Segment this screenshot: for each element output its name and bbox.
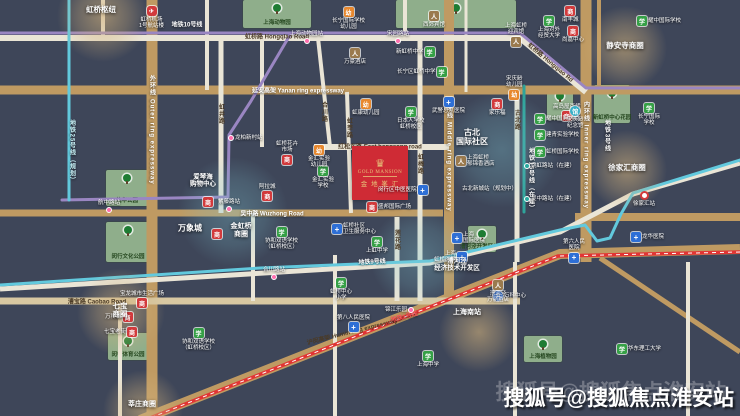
shop-icon: 商 [367, 202, 377, 212]
station-label: 紫藤路站 [218, 199, 240, 205]
shop-icon: 商 [492, 99, 502, 109]
road-label: 延安高架 Yanan ring expressway [252, 86, 344, 95]
poi-label: 漕河泾万丽酒店 [487, 291, 509, 304]
hotel-icon: 人 [511, 37, 521, 47]
poi-shop: 商七宝老街 [104, 327, 137, 337]
station-dot [395, 38, 401, 44]
kind-icon: 幼 [361, 99, 371, 109]
poi-label: 日本人学校虹桥校区 [397, 118, 425, 131]
poi-school: 学协和双语学校（虹桥校区） [265, 227, 298, 251]
shop-icon: 商 [565, 6, 575, 16]
station-label: 锦江乐园 [385, 307, 407, 313]
kind-icon: 幼 [314, 145, 324, 155]
poi-label: 上海中学 [417, 362, 439, 368]
school-icon: 学 [617, 344, 627, 354]
poi-label: 虹桥花卉市场 [276, 141, 298, 154]
poi-school: 学建青实验学校 [535, 130, 579, 140]
road-label: 地铁25号线（规划） [68, 120, 77, 185]
poi-shop: 商盛邦国际广场 [367, 202, 411, 212]
hosp-icon: + [631, 232, 641, 242]
poi-kind: 幼长宁国际学校幼儿园 [332, 7, 365, 31]
poi-hosp: +第六人民医院 [563, 239, 585, 263]
poi-school: 学虹桥国际学校 [535, 147, 579, 157]
poi-school: 学上虹中学 [366, 237, 388, 254]
school-icon: 学 [372, 237, 382, 247]
poi-school: 学金汇实验学校 [312, 166, 334, 190]
poi-hotel: 人上海虹桥迎宾馆 [505, 23, 527, 47]
district-label: 上海南站 [453, 309, 481, 317]
poi-school: 学长宁国际学校 [638, 103, 660, 127]
station-label: 姚虹路站（在建） [531, 163, 575, 169]
poi-kind: 幼虹康幼儿园 [352, 99, 380, 116]
shop-icon: 商 [262, 191, 272, 201]
shop-icon: 商 [137, 298, 147, 308]
poi-hosp: +龙华医院 [631, 232, 664, 242]
road-label: 吴中路 Wuzhong Road [240, 209, 303, 218]
station-label: 吴中路站（在建） [531, 196, 575, 202]
district-label: 金虹桥商圈 [231, 223, 252, 239]
poi-label: 宋庆龄纪念馆 [567, 117, 584, 130]
shop-icon: 商 [203, 197, 213, 207]
metro-station: 姚虹路站（在建） [524, 163, 575, 169]
road-label: 中环线 Middle ring expressway [445, 98, 454, 211]
property-divider [363, 176, 397, 177]
road-label: 外环线 Outer ring expressway [148, 75, 157, 184]
poi-hosp: +虹桥社区卫生服务中心 [332, 223, 376, 236]
station-dot [226, 206, 232, 212]
shop-icon: 商 [568, 26, 578, 36]
shop-icon: 商 [212, 229, 222, 239]
poi-label: 长宁国际学校幼儿园 [332, 18, 365, 31]
map-canvas: 上海动物园航华公园闵行文化公园闵行体育公园新虹桥中心花园漕河泾开发区公园上海植物… [0, 0, 740, 416]
poi-label: 华东理工大学 [628, 346, 661, 352]
district-label: 静安寺商圈 [606, 42, 644, 50]
poi-label: 南丰城 [562, 17, 579, 23]
poi-label: 宋庆龄幼儿园 [506, 76, 523, 89]
poi-label: 龙华医院 [642, 234, 664, 240]
station-dot [106, 207, 112, 213]
poi-label: 金汇实验幼儿园 [308, 156, 330, 169]
hotel-icon: 人 [493, 280, 503, 290]
poi-shop: 商虹桥花卉市场 [276, 141, 298, 165]
district-label: 万象城 [178, 225, 202, 234]
station-label: 合川路站 [263, 267, 285, 273]
metro-station: 合川路站 [263, 267, 285, 280]
poi-label: 武警总队医院 [432, 108, 465, 114]
school-icon: 学 [406, 107, 416, 117]
metro-station: 龙柏新村站 [228, 135, 263, 141]
road-segment [347, 92, 351, 213]
station-label: 宋园路站 [387, 31, 409, 37]
poi-label: 闵行区中医医院 [378, 187, 417, 193]
road-label: 虹井路 [217, 104, 226, 125]
poi-hotel: 人西郊宾馆 [423, 11, 445, 28]
poi-label: 长宁区虹桥中学 [397, 69, 436, 75]
school-icon: 学 [637, 16, 647, 26]
metro-station: 紫藤路站 [218, 199, 240, 212]
poi-hosp: +闵行区中医医院 [378, 185, 428, 195]
station-label: 上海动物园站 [290, 31, 323, 37]
poi-label: 金汇实验学校 [312, 177, 334, 190]
poi-label: 耀中国际学校 [648, 18, 681, 24]
station-dot [228, 135, 234, 141]
road-label: 地铁15号线（在建） [527, 148, 536, 213]
metro-station: 上海动物园站 [290, 31, 323, 44]
poi-hotel: 人上海虹桥郁锦香酒店 [456, 155, 495, 168]
poi-school: 学虹桥中心小学 [330, 278, 352, 302]
poi-label: 虹桥国际学校 [546, 149, 579, 155]
crown-icon: ♛ [375, 159, 385, 169]
school-icon: 学 [423, 351, 433, 361]
station-label: 龙柏新村站 [235, 135, 263, 141]
poi-label: 宝龙城市生活广场 [120, 291, 164, 297]
poi-shop: 商阿拉城 [259, 184, 276, 201]
school-icon: 学 [535, 114, 545, 124]
poi-label: 建青实验学校 [546, 132, 579, 138]
poi-school: 学上海中学 [417, 351, 439, 368]
poi-label: 虹康幼儿园 [352, 110, 380, 116]
poi-label: 上海虹桥郁锦香酒店 [467, 155, 495, 168]
metro-station: 宋园路站 [387, 31, 409, 44]
poi-label: 新虹桥中学 [396, 49, 424, 55]
poi-hosp: +第八人民医院 [337, 315, 370, 332]
road-label: 地铁3号线 [603, 120, 612, 152]
poi-label: 协和双语学校（虹桥校区） [265, 238, 298, 251]
road-segment [600, 258, 740, 352]
school-icon: 学 [535, 147, 545, 157]
road-label: 合川路 [320, 102, 329, 123]
poi-hosp: +上海国际医院 [452, 232, 485, 245]
shop-icon: 商 [282, 155, 292, 165]
poi-label: 七宝老街 [104, 329, 126, 335]
school-icon: 学 [194, 328, 204, 338]
district-label: 七宝商圈 [113, 303, 128, 320]
poi-shop: 商南丰城 [562, 6, 579, 23]
hosp-icon: + [418, 185, 428, 195]
poi-school: 学华东理工大学 [617, 344, 661, 354]
poi-label: 协和双语学校（虹桥校区） [182, 339, 215, 352]
poi-school: 学上海对外经贸大学 [538, 16, 560, 40]
poi-airport: ✈虹桥机场1号航站楼 [139, 6, 164, 30]
poi-label: 上海国际医院 [463, 232, 485, 245]
watermark-text: 搜狐号@搜狐焦点淮安站 [504, 382, 734, 412]
shop-icon: 商 [127, 327, 137, 337]
airport-icon: ✈ [147, 6, 157, 16]
road-label: 地铁9号线 [358, 256, 386, 266]
poi-label: 虹桥中心小学 [330, 289, 352, 302]
station-dot [640, 191, 649, 200]
poi-shop: 商尚嘉中心 [562, 26, 584, 43]
road-label: 莲花路 [393, 230, 402, 251]
metro-station: 古北新城站（规划中） [462, 186, 517, 192]
road-label: 古北路 [513, 110, 522, 131]
school-icon: 学 [425, 47, 435, 57]
metro-station: 徐家汇站 [633, 191, 655, 207]
station-label: 徐家汇站 [633, 201, 655, 207]
station-dot [271, 274, 277, 280]
poi-school: 学长宁区虹桥中学 [397, 67, 447, 77]
poi-school: 学日本人学校虹桥校区 [397, 107, 425, 131]
poi-label: 家乐福 [489, 110, 506, 116]
district-label: 虹桥枢纽 [86, 6, 116, 14]
hosp-icon: + [569, 253, 579, 263]
poi-kind: 幼金汇实验幼儿园 [308, 145, 330, 169]
poi-school: 学新虹桥中学 [396, 47, 435, 57]
school-icon: 学 [535, 130, 545, 140]
school-icon: 学 [336, 278, 346, 288]
road-label: 地铁10号线 [172, 20, 203, 29]
road-label: 虹莘路 [345, 118, 354, 139]
poi-shop: 商家乐福 [489, 99, 506, 116]
district-label: 莘庄商圈 [128, 401, 156, 409]
hotel-icon: 人 [456, 156, 466, 166]
poi-hotel: 人万豪酒店 [344, 48, 366, 65]
hotel-icon: 人 [350, 48, 360, 58]
station-dot [408, 307, 414, 313]
poi-kind: 幼宋庆龄幼儿园 [506, 76, 523, 100]
hosp-icon: + [452, 233, 462, 243]
poi-label: 上海虹桥迎宾馆 [505, 23, 527, 36]
poi-school: 学协和双语学校（虹桥校区） [182, 328, 215, 352]
school-icon: 学 [644, 103, 654, 113]
poi-label: 第六人民医院 [563, 239, 585, 252]
district-label: 漕河泾经济技术开发区 [434, 258, 480, 273]
station-label: 航中路站 [98, 200, 120, 206]
school-icon: 学 [277, 227, 287, 237]
hotel-icon: 人 [429, 11, 439, 21]
road-segment [0, 38, 586, 92]
district-label: 爱琴海购物中心 [190, 174, 216, 189]
poi-label: 上虹中学 [366, 248, 388, 254]
poi-museum: 馆宋庆龄纪念馆 [567, 106, 584, 130]
poi-label: 长宁国际学校 [638, 114, 660, 127]
school-icon: 学 [437, 67, 447, 77]
road-label: 虹梅路 [416, 154, 425, 175]
poi-label: 尚嘉中心 [562, 37, 584, 43]
poi-school: 学耀中国际学校 [637, 16, 681, 26]
poi-label: 上海对外经贸大学 [538, 27, 560, 40]
district-label: 古北国际社区 [456, 129, 488, 147]
station-dot [524, 163, 530, 169]
kind-icon: 幼 [509, 90, 519, 100]
road-segment [62, 35, 290, 200]
station-dot [524, 196, 530, 202]
hosp-icon: + [349, 322, 359, 332]
poi-label: 虹桥机场1号航站楼 [139, 17, 164, 30]
poi-shop: 商 [212, 229, 222, 239]
poi-label: 西郊宾馆 [423, 22, 445, 28]
poi-label: 万豪酒店 [344, 59, 366, 65]
station-dot [304, 38, 310, 44]
poi-label: 阿拉城 [259, 184, 276, 190]
property-name-en: GOLD MANSION [358, 170, 402, 175]
hosp-icon: + [444, 97, 454, 107]
metro-station: 锦江乐园 [385, 307, 414, 313]
poi-label: 盛邦国际广场 [378, 204, 411, 210]
district-label: 徐家汇商圈 [608, 164, 646, 172]
poi-hotel: 人漕河泾万丽酒店 [487, 280, 509, 304]
poi-hosp: +武警总队医院 [432, 97, 465, 114]
station-label: 古北新城站（规划中） [462, 186, 517, 192]
metro-station: 航中路站 [98, 200, 120, 213]
museum-icon: 馆 [570, 106, 580, 116]
hosp-icon: + [332, 224, 342, 234]
poi-shop: 商 [203, 197, 213, 207]
kind-icon: 幼 [344, 7, 354, 17]
school-icon: 学 [544, 16, 554, 26]
poi-label: 第八人民医院 [337, 315, 370, 321]
metro-station: 吴中路站（在建） [524, 196, 575, 202]
poi-label: 虹桥社区卫生服务中心 [343, 223, 376, 236]
